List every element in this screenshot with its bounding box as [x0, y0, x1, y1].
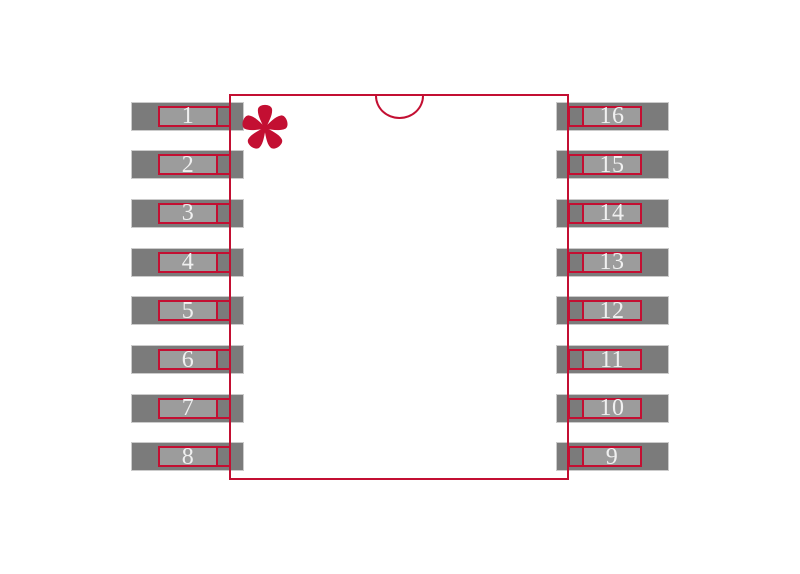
- pin-lead-fill-pin-3: 3: [160, 205, 218, 222]
- pin-outline-pin-1: 1: [158, 106, 231, 127]
- pin-lead-fill-pin-7: 7: [160, 400, 218, 417]
- pin-lead-fill-pin-10: 10: [582, 400, 640, 417]
- pin-number-label: 10: [600, 396, 625, 420]
- pin-lead-fill-pin-16: 16: [582, 108, 640, 125]
- pin-number-label: 1: [182, 104, 195, 128]
- pin-lead-fill-pin-12: 12: [582, 302, 640, 319]
- pin-outline-pin-12: 12: [568, 300, 642, 321]
- pin-lead-fill-pin-4: 4: [160, 254, 218, 271]
- pin-lead-fill-pin-5: 5: [160, 302, 218, 319]
- pin-number-label: 4: [182, 250, 195, 274]
- pin-number-label: 6: [182, 348, 195, 372]
- footprint-canvas: 12345678161514131211109: [0, 0, 800, 574]
- pin-lead-fill-pin-2: 2: [160, 156, 218, 173]
- pin-outline-pin-10: 10: [568, 398, 642, 419]
- pin-outline-pin-11: 11: [568, 349, 642, 370]
- pin-lead-fill-pin-8: 8: [160, 448, 218, 465]
- pin-number-label: 3: [182, 201, 195, 225]
- pin1-marker-asterisk-icon: [237, 100, 293, 156]
- pin-lead-fill-pin-11: 11: [582, 351, 640, 368]
- pin-number-label: 7: [182, 396, 195, 420]
- pin-outline-pin-8: 8: [158, 446, 231, 467]
- pin-outline-pin-15: 15: [568, 154, 642, 175]
- pin-number-label: 9: [606, 445, 619, 469]
- pin-outline-pin-13: 13: [568, 252, 642, 273]
- pin-number-label: 8: [182, 445, 195, 469]
- pin-outline-pin-7: 7: [158, 398, 231, 419]
- pin-outline-pin-16: 16: [568, 106, 642, 127]
- pin-number-label: 15: [600, 153, 625, 177]
- pin-outline-pin-3: 3: [158, 203, 231, 224]
- pin-outline-pin-6: 6: [158, 349, 231, 370]
- pin-number-label: 16: [600, 104, 625, 128]
- pin-lead-fill-pin-15: 15: [582, 156, 640, 173]
- pin-number-label: 14: [600, 201, 625, 225]
- pin-lead-fill-pin-9: 9: [582, 448, 640, 465]
- pin-lead-fill-pin-14: 14: [582, 205, 640, 222]
- pin-outline-pin-4: 4: [158, 252, 231, 273]
- pin-number-label: 11: [600, 348, 624, 372]
- pin-number-label: 13: [600, 250, 625, 274]
- pin-outline-pin-5: 5: [158, 300, 231, 321]
- pin-number-label: 12: [600, 299, 625, 323]
- pin-outline-pin-9: 9: [568, 446, 642, 467]
- pin-number-label: 2: [182, 153, 195, 177]
- pin-lead-fill-pin-6: 6: [160, 351, 218, 368]
- pin-lead-fill-pin-1: 1: [160, 108, 218, 125]
- pin-outline-pin-2: 2: [158, 154, 231, 175]
- pin-outline-pin-14: 14: [568, 203, 642, 224]
- pin-lead-fill-pin-13: 13: [582, 254, 640, 271]
- pin-number-label: 5: [182, 299, 195, 323]
